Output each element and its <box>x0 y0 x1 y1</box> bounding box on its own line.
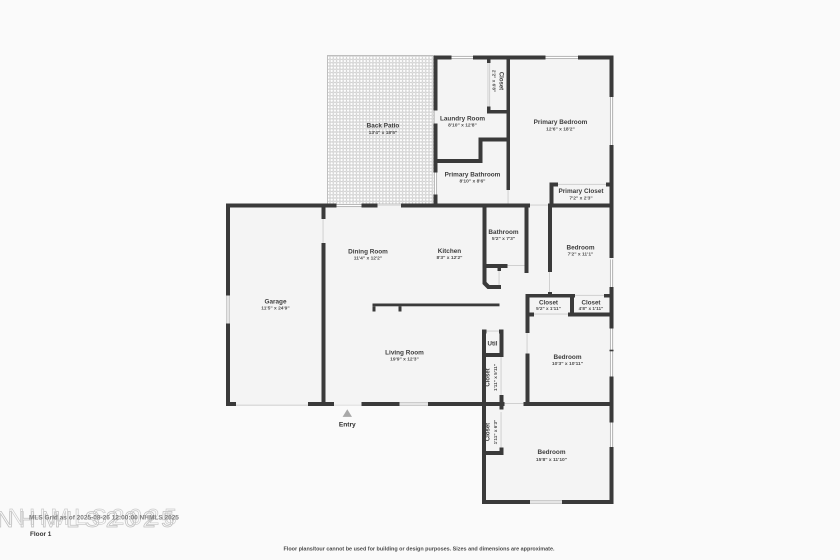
svg-text:Util: Util <box>488 341 498 348</box>
svg-text:Bedroom: Bedroom <box>566 244 594 251</box>
svg-text:Kitchen: Kitchen <box>438 248 462 255</box>
svg-text:Primary Closet: Primary Closet <box>558 188 604 195</box>
svg-text:19'9" x 12'3": 19'9" x 12'3" <box>390 356 419 362</box>
svg-text:12'6" x 18'2": 12'6" x 18'2" <box>546 126 575 132</box>
svg-text:Laundry Room: Laundry Room <box>440 115 485 122</box>
svg-text:1'11" x 6'3": 1'11" x 6'3" <box>493 420 498 445</box>
svg-text:10'3" x 10'11": 10'3" x 10'11" <box>552 361 583 367</box>
svg-text:11'4" x 12'2": 11'4" x 12'2" <box>354 256 382 262</box>
svg-text:Closet: Closet <box>498 72 504 90</box>
svg-text:Floor plans/tour cannot be use: Floor plans/tour cannot be used for buil… <box>283 547 554 553</box>
svg-text:Bedroom: Bedroom <box>553 354 581 361</box>
svg-text:7'2" x 11'1": 7'2" x 11'1" <box>568 252 594 258</box>
svg-text:8'3" x 12'2": 8'3" x 12'2" <box>436 255 462 261</box>
svg-text:Dining Room: Dining Room <box>348 249 388 256</box>
svg-text:1'11" x 5'11": 1'11" x 5'11" <box>493 364 498 391</box>
svg-text:4'8" x 1'11": 4'8" x 1'11" <box>579 306 604 311</box>
svg-text:Primary Bedroom: Primary Bedroom <box>534 119 588 126</box>
svg-text:Garage: Garage <box>264 299 286 306</box>
svg-text:5'2" x 7'3": 5'2" x 7'3" <box>492 236 515 242</box>
svg-text:Floor 1: Floor 1 <box>30 531 52 538</box>
svg-text:5'2" x 1'11": 5'2" x 1'11" <box>536 306 561 311</box>
svg-text:Entry: Entry <box>339 422 356 429</box>
svg-text:11'5" x 24'9": 11'5" x 24'9" <box>261 306 289 312</box>
svg-text:Living Room: Living Room <box>385 349 424 356</box>
svg-text:MLS Grid as of 2025-08-26 12:0: MLS Grid as of 2025-08-26 12:00:00 NHMLS… <box>29 515 179 522</box>
svg-text:2'2" x 6'8": 2'2" x 6'8" <box>492 70 497 92</box>
svg-text:13'4" x 18'5": 13'4" x 18'5" <box>369 130 398 136</box>
svg-text:8'10" x 8'6": 8'10" x 8'6" <box>459 179 485 185</box>
svg-text:8'10" x 12'8": 8'10" x 12'8" <box>448 123 477 129</box>
svg-text:Primary Bathroom: Primary Bathroom <box>445 171 501 178</box>
svg-text:Closet: Closet <box>486 423 492 441</box>
svg-text:Back Patio: Back Patio <box>367 123 400 130</box>
svg-text:Bathroom: Bathroom <box>488 229 518 236</box>
svg-text:7'2" x 2'3": 7'2" x 2'3" <box>569 195 592 201</box>
svg-text:15'8" x 11'10": 15'8" x 11'10" <box>536 457 567 463</box>
svg-text:Closet: Closet <box>486 368 492 386</box>
svg-text:Bedroom: Bedroom <box>537 449 565 456</box>
